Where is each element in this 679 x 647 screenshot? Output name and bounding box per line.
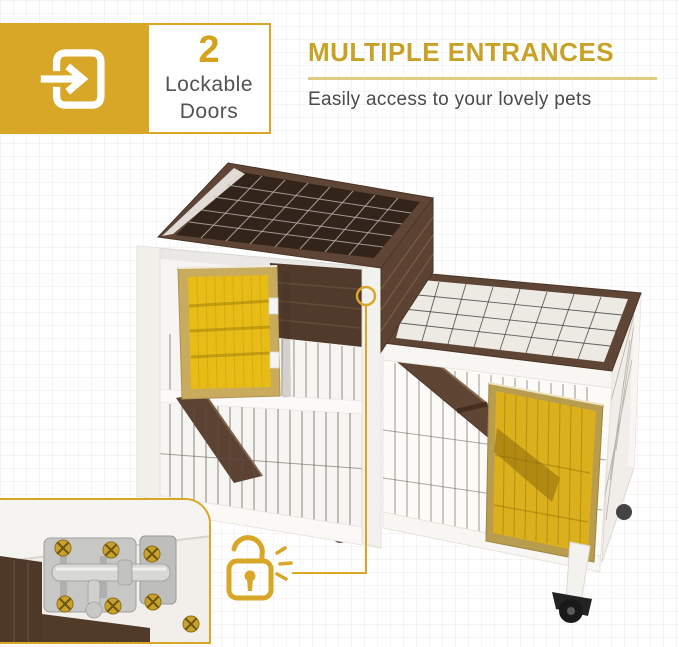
left-yellow-door [178, 266, 291, 399]
dark-plank [0, 556, 42, 644]
door-hinge [270, 352, 279, 368]
emphasis-dashes [277, 548, 291, 579]
latch-photo [0, 500, 211, 644]
latch-inset [0, 498, 211, 644]
marketing-image: 2 Lockable Doors MULTIPLE ENTRANCES Easi… [0, 0, 679, 647]
rear-wheel [616, 504, 632, 520]
door-hinge [269, 298, 278, 314]
right-yellow-door [486, 383, 603, 562]
open-padlock-icon [229, 538, 291, 598]
